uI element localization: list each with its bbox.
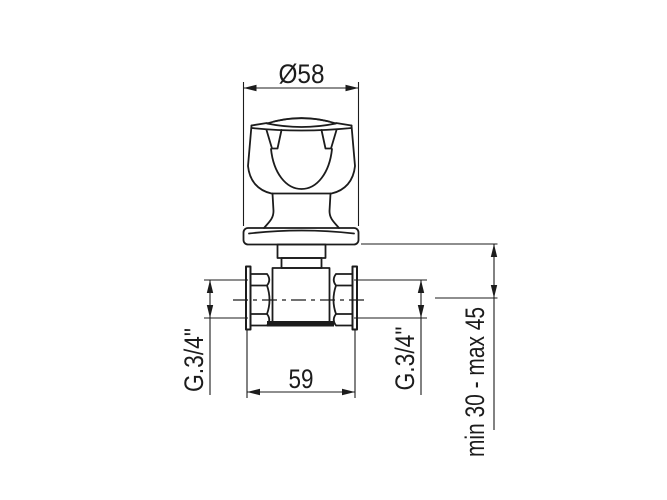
dim-thread-right-label: G.3/4" [390,327,420,391]
knob-cap-accent [274,118,329,121]
dim-depth-range-label: min 30 - max 45 [460,307,490,457]
arrowhead [418,280,424,293]
arrowhead [247,389,260,395]
knob-cap [267,118,336,127]
technical-drawing: Ø58 59 G.3/4" G.3/4" [0,0,667,500]
extension-lines [361,244,498,298]
dim-depth-range: min 30 - max 45 [361,244,498,457]
dim-width-label: 59 [289,364,314,394]
dim-diameter-label: Ø58 [279,59,325,89]
arrowhead [207,305,213,318]
valve-stem [278,245,326,269]
stem-step-upper [278,245,326,259]
handle-knob [248,118,355,228]
knob-body-outline [248,126,355,194]
arrowhead [491,244,497,257]
dim-thread-right: G.3/4" [354,280,427,395]
arrowhead [491,285,497,298]
escutcheon-plate [244,228,359,245]
dim-thread-left-label: G.3/4" [179,328,209,392]
dim-diameter: Ø58 [244,59,359,226]
arrowhead [342,389,355,395]
escutcheon-face-curve [249,231,354,234]
left-pipe-connector [246,267,270,330]
knob-grip-curve [271,149,332,189]
dim-thread-left: G.3/4" [179,280,248,395]
valve-body-base-edge [268,322,334,327]
drawing-canvas: Ø58 59 G.3/4" G.3/4" [0,0,667,500]
knob-spoke-left [267,130,282,149]
right-pipe-connector [334,267,358,330]
extension-lines [354,280,427,318]
knob-neck [264,194,339,229]
arrowhead [418,305,424,318]
arrowhead [244,85,257,91]
arrowhead [207,280,213,293]
dim-width: 59 [247,329,355,398]
stem-step-lower [282,258,322,268]
extension-lines [244,82,359,226]
valve-body [268,268,334,326]
knob-spoke-right [322,130,337,149]
arrowhead [346,85,359,91]
valve-body-block [273,268,330,322]
